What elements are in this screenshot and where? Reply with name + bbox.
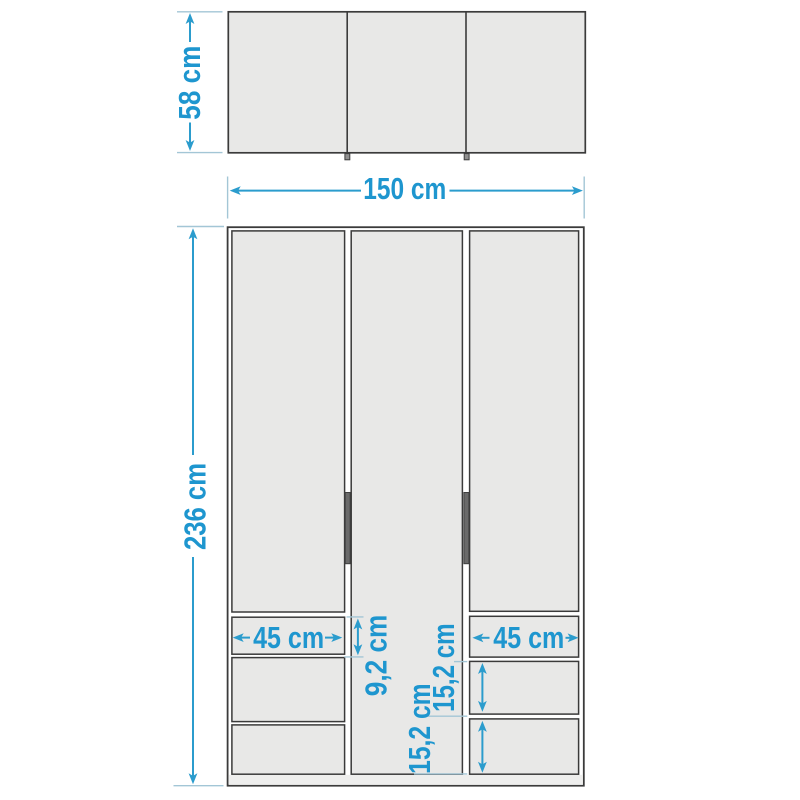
svg-text:58 cm: 58 cm <box>172 46 207 120</box>
svg-text:45 cm: 45 cm <box>493 620 564 655</box>
svg-text:15,2 cm: 15,2 cm <box>402 683 437 774</box>
svg-text:9,2 cm: 9,2 cm <box>358 615 393 697</box>
svg-text:150 cm: 150 cm <box>363 171 446 206</box>
svg-text:45 cm: 45 cm <box>253 620 324 655</box>
svg-text:236 cm: 236 cm <box>178 463 213 550</box>
